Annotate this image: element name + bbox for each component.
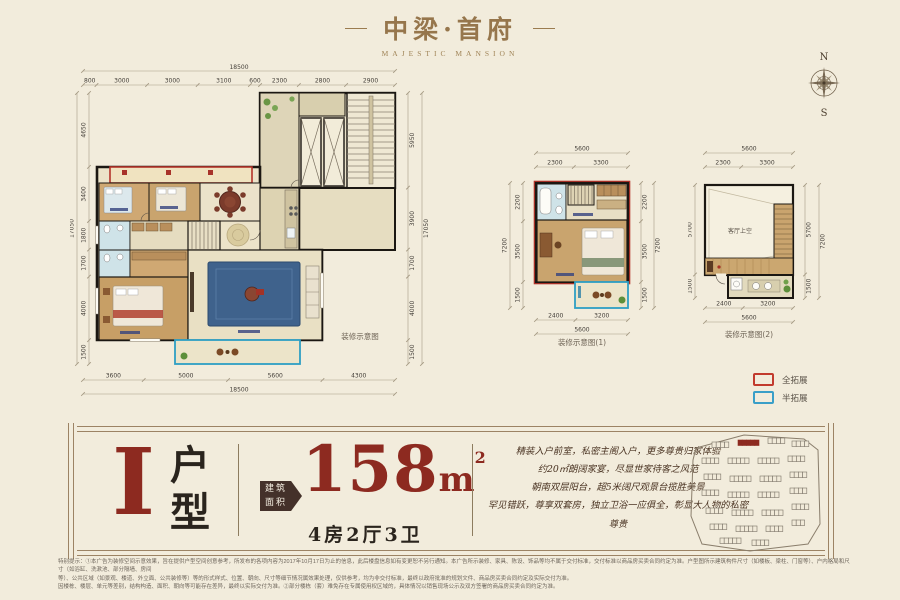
svg-text:3200: 3200: [594, 313, 609, 320]
svg-text:600: 600: [249, 78, 261, 85]
svg-text:1500: 1500: [806, 278, 813, 293]
svg-text:1500: 1500: [515, 287, 522, 302]
logo-flourish-right: [533, 28, 555, 29]
legend-label-full: 全拓展: [782, 374, 808, 386]
svg-text:3900: 3900: [409, 211, 416, 226]
svg-text:2300: 2300: [272, 78, 287, 85]
compass-rose-icon: [804, 63, 844, 103]
svg-text:5600: 5600: [741, 146, 756, 153]
area-unit: m: [439, 460, 475, 500]
built-area-tag-line2: 面积: [265, 495, 302, 509]
svg-text:3300: 3300: [759, 160, 774, 167]
banner-frame-left: [68, 423, 74, 559]
detail-plan-2: 客厅上空 装修示意图(2) 56002300330057001500570015…: [688, 138, 853, 358]
svg-text:5600: 5600: [574, 146, 589, 153]
svg-text:3100: 3100: [216, 78, 231, 85]
area-number: 158: [302, 432, 439, 507]
svg-text:18500: 18500: [229, 64, 248, 71]
svg-text:4300: 4300: [351, 373, 366, 380]
svg-text:7200: 7200: [655, 238, 662, 253]
brand-logo-subtitle: MAJESTIC MANSION: [0, 49, 900, 58]
banner-divider-1: [238, 444, 239, 536]
svg-text:5000: 5000: [178, 373, 193, 380]
svg-text:1500: 1500: [688, 278, 694, 293]
svg-text:1500: 1500: [409, 344, 416, 359]
svg-text:5950: 5950: [409, 132, 416, 147]
unit-info-banner: I 户 型 建筑 面积 158m2 4房2厅3卫 精装入户前室，私密主阁入户，更…: [68, 426, 834, 556]
unit-word-top: 户: [170, 442, 210, 489]
compass: N S: [796, 52, 852, 119]
logo-flourish-left: [345, 28, 367, 29]
svg-text:3000: 3000: [165, 78, 180, 85]
svg-text:7200: 7200: [820, 234, 827, 249]
plan2-caption: 装修示意图(2): [725, 329, 773, 339]
svg-text:17050: 17050: [70, 219, 76, 238]
banner-frame-right: [828, 423, 834, 559]
svg-text:2200: 2200: [515, 194, 522, 209]
header: 中梁·首府 MAJESTIC MANSION: [0, 10, 900, 58]
svg-text:7200: 7200: [502, 238, 509, 253]
legend-row-full: 全拓展: [753, 373, 808, 386]
svg-text:2200: 2200: [642, 194, 649, 209]
plan2-room-label: 客厅上空: [728, 227, 752, 235]
area-superscript: 2: [475, 448, 486, 467]
svg-text:3500: 3500: [515, 244, 522, 259]
brand-logo: 中梁·首府: [383, 10, 517, 46]
svg-text:5600: 5600: [574, 327, 589, 334]
svg-text:2900: 2900: [363, 78, 378, 85]
banner-divider-2: [472, 444, 473, 536]
room-layout-label: 4房2厅3卫: [308, 520, 423, 547]
svg-text:3000: 3000: [114, 78, 129, 85]
compass-north-label: N: [796, 52, 852, 63]
disclaimer-line: 等）、公共区域（如景观、楼道、外立面、公共装修等）等的形式样式、位置、朝向、尺寸…: [58, 575, 850, 583]
plan1-body: [535, 182, 630, 309]
svg-text:1500: 1500: [81, 344, 88, 359]
svg-text:4000: 4000: [409, 301, 416, 316]
unit-word-bottom: 型: [170, 489, 210, 536]
built-area-tag: 建筑 面积: [260, 481, 302, 511]
svg-text:1800: 1800: [81, 227, 88, 242]
svg-text:3600: 3600: [106, 373, 121, 380]
site-plan-keymap: [686, 430, 826, 554]
extend-legend: 全拓展 半拓展: [753, 373, 808, 409]
compass-south-label: S: [796, 108, 852, 119]
svg-text:4000: 4000: [81, 301, 88, 316]
main-floor-plan: 装修示意图 1850080030003000310060023002800290…: [70, 58, 482, 413]
svg-text:5700: 5700: [806, 222, 813, 237]
disclaimer-line: 因楼栋、楼层、单元等差别，结构构造、面积、朝向等可能存在差异，最终以实际交付为准…: [58, 583, 850, 591]
balcony-full-extend: [110, 167, 252, 183]
svg-text:5600: 5600: [741, 315, 756, 322]
svg-text:1700: 1700: [409, 255, 416, 270]
plan1-caption: 装修示意图(1): [558, 337, 606, 347]
detail-plan-1: 装修示意图(1) 5600230033007200220035001500220…: [498, 138, 688, 358]
disclaimer-line: 特别提示：①本广告为装修空间示意效果，旨在提供户型空间创意参考，所发布的各项内容…: [58, 558, 850, 575]
site-plan-buildings: [702, 438, 809, 546]
legal-disclaimer: 特别提示：①本广告为装修空间示意效果，旨在提供户型空间创意参考，所发布的各项内容…: [58, 558, 850, 591]
svg-text:5600: 5600: [268, 373, 283, 380]
svg-text:2400: 2400: [548, 313, 563, 320]
svg-text:18500: 18500: [229, 387, 248, 394]
plan2-body: [705, 185, 793, 298]
unit-body: [96, 167, 324, 364]
legend-swatch-full: [753, 373, 774, 386]
unit-type-label: 户 型: [170, 442, 210, 536]
svg-text:1700: 1700: [81, 255, 88, 270]
svg-text:3400: 3400: [81, 186, 88, 201]
svg-text:1500: 1500: [642, 287, 649, 302]
svg-text:2300: 2300: [715, 160, 730, 167]
svg-text:3500: 3500: [642, 244, 649, 259]
legend-label-half: 半拓展: [782, 392, 808, 404]
svg-text:800: 800: [84, 78, 96, 85]
svg-text:17050: 17050: [423, 219, 430, 238]
svg-text:5700: 5700: [688, 222, 694, 237]
svg-text:2400: 2400: [716, 301, 731, 308]
legend-swatch-half: [753, 391, 774, 404]
legend-row-half: 半拓展: [753, 391, 808, 404]
unit-letter: I: [112, 434, 155, 531]
svg-text:2300: 2300: [547, 160, 562, 167]
svg-text:2800: 2800: [315, 78, 330, 85]
svg-text:4650: 4650: [81, 122, 88, 137]
area-value: 158m2: [302, 432, 486, 507]
main-plan-caption: 装修示意图: [341, 331, 379, 341]
svg-text:3300: 3300: [593, 160, 608, 167]
svg-text:3200: 3200: [760, 301, 775, 308]
built-area-tag-line1: 建筑: [265, 481, 302, 495]
